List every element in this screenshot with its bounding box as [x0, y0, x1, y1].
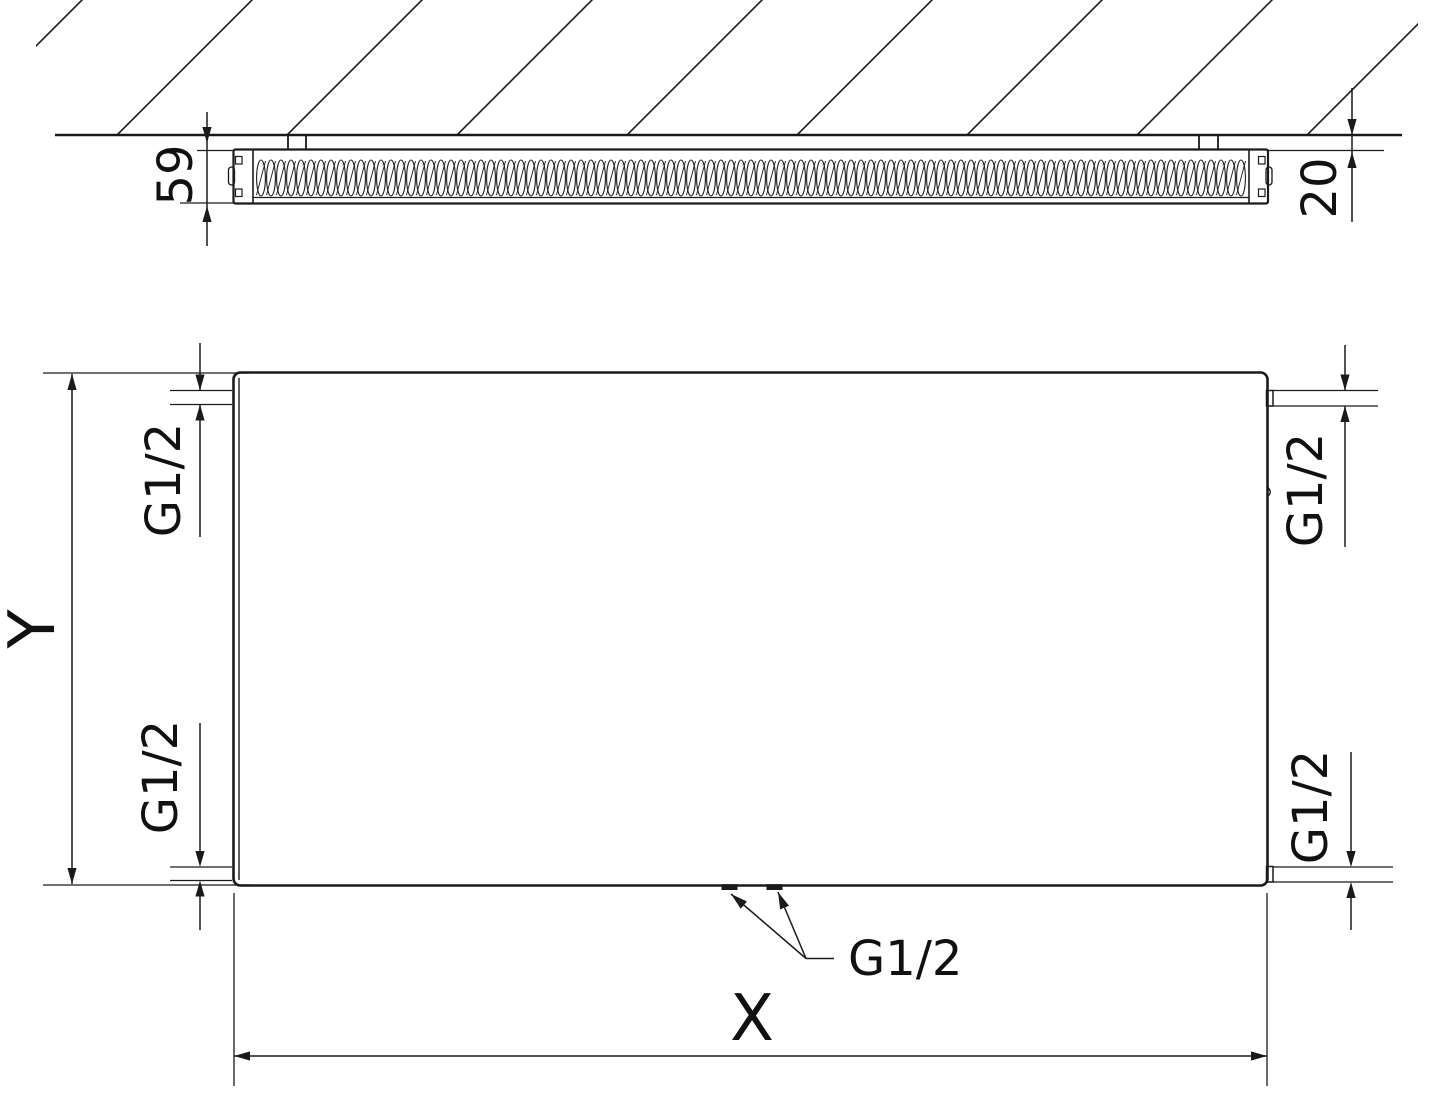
arrowhead [195, 375, 204, 391]
wall-gap-dimension-label: 20 [1292, 157, 1348, 218]
arrowhead [234, 1051, 250, 1060]
top-view-cross-section: 59 20 [0, 0, 1437, 246]
hatch-line [455, 0, 597, 137]
depth-dimension-label: 59 [148, 144, 204, 205]
hatch-line [0, 0, 87, 137]
wall-bracket-right [1199, 136, 1218, 150]
convector-fins [256, 159, 1246, 197]
panel-outline [234, 373, 1268, 886]
hatch-line [965, 0, 1107, 137]
arrowhead [1347, 119, 1356, 135]
dimension-thread-bottom-left: G1/2 [133, 720, 232, 930]
thread-label-bottom-left: G1/2 [133, 720, 189, 834]
dimension-depth-59: 59 [148, 112, 233, 246]
thread-label-top-left: G1/2 [136, 423, 192, 537]
wall-hatching [0, 0, 1437, 137]
end-cap-clip [1259, 157, 1266, 165]
radiator-technical-drawing: 59 20 Y [0, 0, 1437, 1097]
end-cap-clip [236, 157, 243, 165]
leader-line [731, 894, 806, 959]
width-dimension-label: X [730, 982, 774, 1056]
height-dimension-label: Y [0, 609, 70, 650]
front-view-panel: Y X G1/2 G1/2 [0, 343, 1393, 1086]
arrowhead [1340, 375, 1349, 391]
arrowhead [1346, 882, 1355, 898]
arrowhead [195, 405, 204, 421]
arrowhead [195, 851, 204, 867]
drawing-svg: 59 20 Y [0, 0, 1437, 1097]
wall-bracket-left [288, 136, 306, 150]
bottom-port-left [722, 884, 738, 890]
hatch-line [1305, 0, 1437, 137]
dimension-thread-bottom-right: G1/2 [1273, 750, 1393, 930]
dimension-width-X: X [234, 893, 1267, 1086]
hatch-line [795, 0, 937, 137]
arrowhead [195, 881, 204, 897]
dimension-thread-top-left: G1/2 [136, 343, 232, 537]
arrowhead [202, 206, 211, 222]
arrowhead [67, 868, 76, 884]
dimension-wall-gap-20: 20 [1268, 88, 1384, 222]
hatch-line [1135, 0, 1277, 137]
hatch-line [115, 0, 257, 137]
end-cap-clip [1259, 189, 1266, 197]
dimension-height-Y: Y [0, 373, 250, 885]
arrowhead [1251, 1051, 1267, 1060]
thread-label-bottom-center: G1/2 [848, 931, 962, 987]
dimension-thread-top-right: G1/2 [1273, 345, 1378, 547]
arrowhead [67, 374, 76, 390]
leader-thread-bottom-center: G1/2 [731, 892, 962, 987]
hatch-line [625, 0, 767, 137]
leader-line [778, 892, 806, 959]
arrowhead [1340, 406, 1349, 422]
radiator-body-section [229, 150, 1273, 204]
arrowhead [1347, 152, 1356, 168]
thread-label-bottom-right: G1/2 [1283, 750, 1339, 864]
hatch-line [285, 0, 427, 137]
thread-label-top-right: G1/2 [1278, 433, 1334, 547]
bottom-port-right [767, 884, 783, 890]
end-cap-clip [236, 189, 243, 197]
arrowhead [1346, 851, 1355, 867]
